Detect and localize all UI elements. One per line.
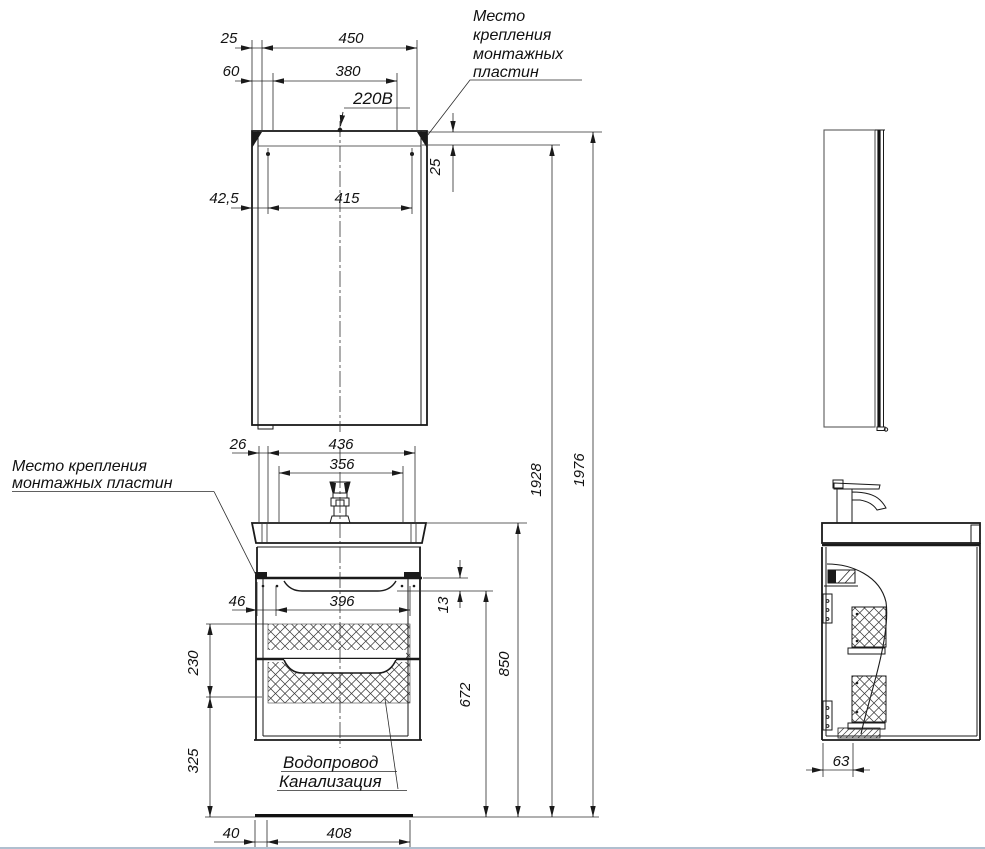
- dim-drawer-offset: 46: [229, 593, 246, 610]
- mounting-left-label-line1: Место крепления: [12, 458, 147, 475]
- mirror-front-view: [252, 121, 427, 432]
- dim-plate-drop: 25: [427, 158, 444, 176]
- power-outlet-leader: [341, 112, 344, 126]
- dim-vanity-plates-span: 356: [329, 456, 355, 473]
- dim-mirror-offset2: 60: [223, 63, 240, 80]
- vanity-side-view: [822, 480, 980, 740]
- mounting-top-label-line2: крепления: [473, 27, 552, 44]
- mirror-side-view: [824, 130, 888, 431]
- dim-mirror-edge-offset: 25: [220, 30, 238, 47]
- extension-lines: [206, 40, 853, 848]
- bottom-panel-section: [838, 728, 880, 738]
- power-outlet-point: [338, 128, 343, 133]
- sewerage-label: Канализация: [279, 772, 382, 791]
- dim-zone-offset: 40: [223, 825, 240, 842]
- dim-vanity-edge-offset: 26: [229, 436, 247, 453]
- dim-sink-gap: 13: [435, 596, 452, 613]
- dim-zone-clearance: 325: [185, 748, 202, 774]
- dim-drawer-width: 396: [329, 593, 355, 610]
- utilities-leader: [385, 699, 398, 789]
- water-supply-label: Водопровод: [283, 753, 378, 772]
- sink-deck: [252, 523, 426, 543]
- mounting-top-leader: [427, 80, 582, 136]
- dim-plate-span: 415: [334, 190, 360, 207]
- power-outlet-label: 220В: [352, 89, 393, 108]
- dim-plates-height: 1928: [528, 463, 545, 497]
- mounting-top-label-line1: Место: [473, 8, 525, 25]
- dim-zone-width: 408: [326, 825, 352, 842]
- dim-zone-height: 230: [185, 650, 202, 677]
- mounting-plate-mark-lower-right: [404, 572, 420, 579]
- mounting-top-label-line4: пластин: [473, 64, 539, 81]
- technical-drawing-page: 25 450 60 380 42,5 415 25 220В 26 436 35…: [0, 0, 985, 849]
- dim-mirror-plates-span: 380: [335, 63, 361, 80]
- dim-side-front-offset: 63: [833, 753, 850, 770]
- dimension-lines: [205, 48, 870, 842]
- faucet-side: [833, 480, 886, 523]
- dim-vanity-width: 436: [328, 436, 354, 453]
- drawer-rail-top: [848, 648, 885, 654]
- dim-drain-height: 672: [457, 682, 474, 708]
- dim-mirror-width: 450: [338, 30, 364, 47]
- backsplash-block: [971, 525, 980, 543]
- dim-total-height: 1976: [571, 453, 588, 487]
- dim-counter-height: 850: [496, 651, 513, 677]
- mounting-left-leader: [214, 492, 256, 576]
- mirror-door-foot: [877, 427, 885, 431]
- mounting-top-label-line3: монтажных: [473, 46, 564, 63]
- dim-plate-left: 42,5: [209, 190, 239, 207]
- vanity-installation-drawing: 25 450 60 380 42,5 415 25 220В 26 436 35…: [0, 0, 985, 849]
- dimension-text: 25 450 60 380 42,5 415 25 220В 26 436 35…: [185, 30, 850, 842]
- mounting-left-label-line2: монтажных пластин: [12, 475, 173, 492]
- mounting-plate-mark-lower-left: [255, 572, 267, 579]
